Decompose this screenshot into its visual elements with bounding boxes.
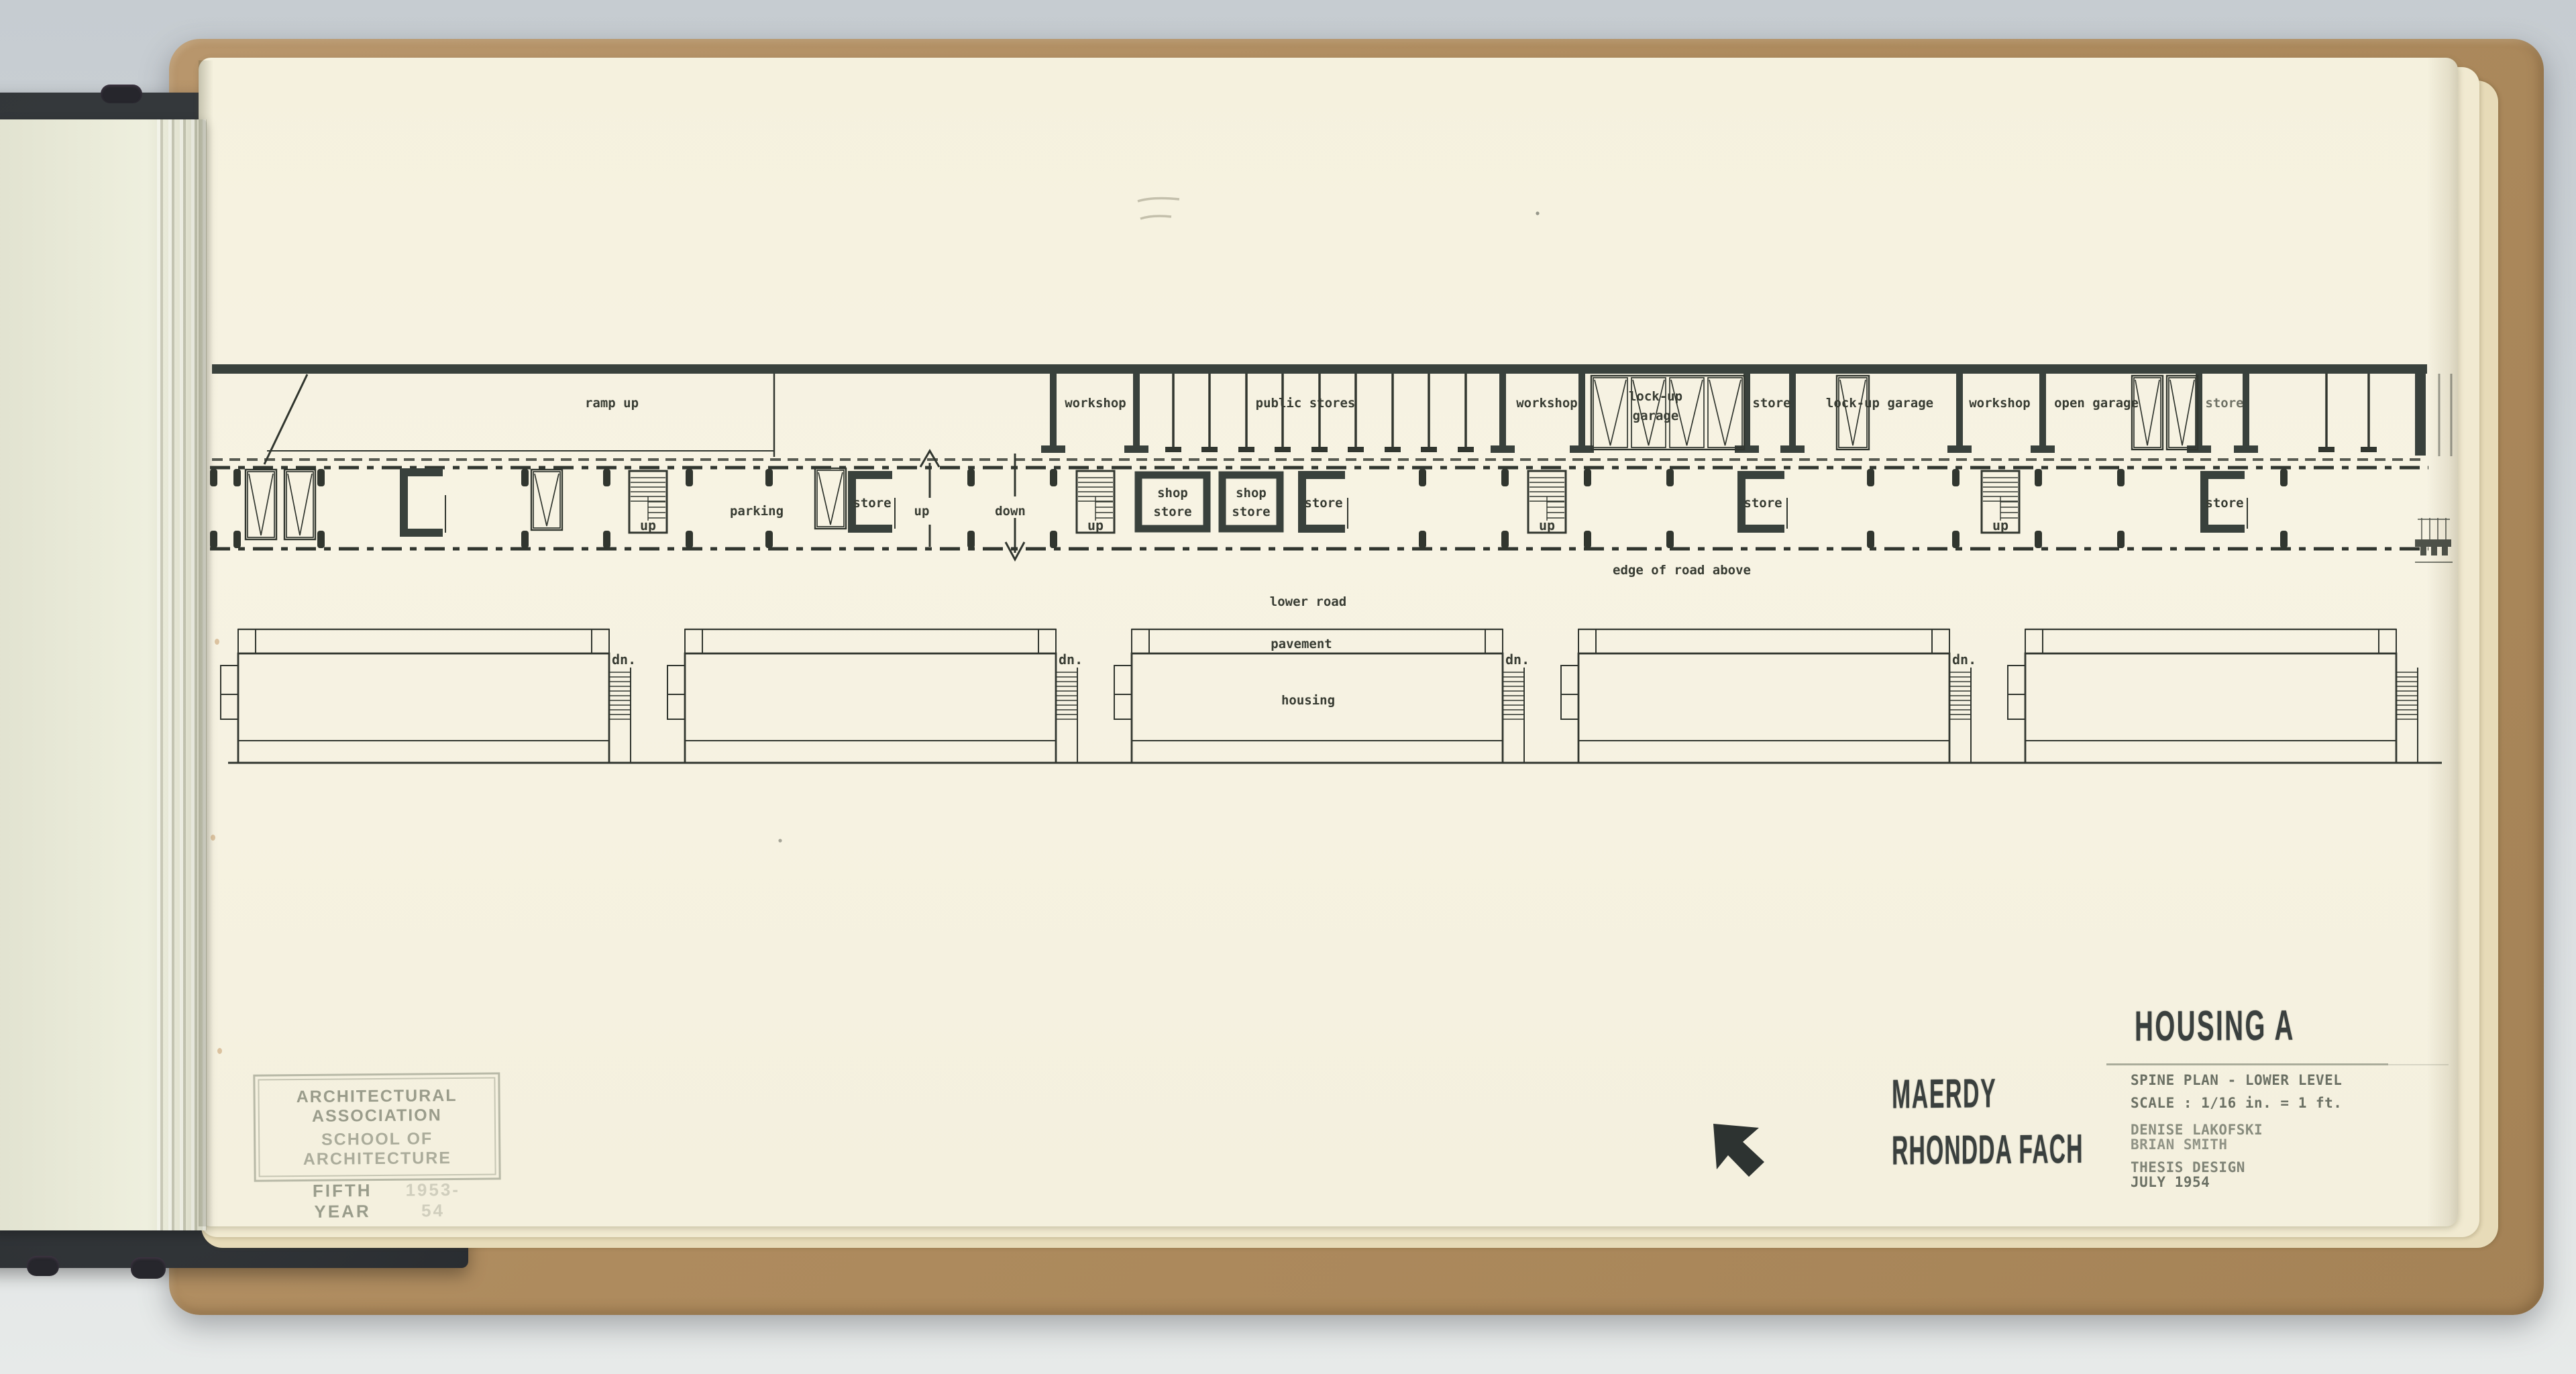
author-name: DENISE LAKOFSKI	[2131, 1122, 2263, 1138]
turned-pages-stack	[0, 119, 207, 1230]
school-stamp-line1: ARCHITECTURAL ASSOCIATION	[255, 1086, 498, 1126]
foxing-speck	[217, 1048, 222, 1054]
binding-knob	[101, 85, 142, 103]
drawing-scale: SCALE : 1/16 in. = 1 ft.	[2131, 1095, 2342, 1111]
gutter-shadow	[199, 60, 213, 1226]
school-stamp-session: 1953-54	[398, 1179, 469, 1222]
project-title-stamp: HOUSING A	[2135, 1002, 2295, 1051]
school-stamp-line2: SCHOOL OF ARCHITECTURE	[256, 1128, 498, 1169]
photo-of-bound-architectural-drawing: { "plan_labels": { "ramp_up": "ramp up",…	[0, 0, 2576, 1374]
drawing-title: SPINE PLAN - LOWER LEVEL	[2131, 1072, 2342, 1088]
location-stamp-line1: MAERDY	[1892, 1070, 1996, 1118]
drawing-sheet	[199, 58, 2458, 1226]
title-block-divider	[2106, 1063, 2388, 1065]
foxing-speck	[211, 835, 215, 841]
title-block-divider-faint	[2388, 1064, 2449, 1065]
foxing-speck	[215, 639, 219, 645]
location-stamp-line2: RHONDDA FACH	[1892, 1125, 2084, 1174]
submission-type: THESIS DESIGN	[2131, 1159, 2245, 1175]
binding-knob	[131, 1257, 166, 1279]
author-name: BRIAN SMITH	[2131, 1137, 2228, 1153]
school-stamp-year-label: FIFTH YEAR	[287, 1180, 398, 1222]
submission-date: JULY 1954	[2131, 1174, 2210, 1190]
school-stamp: ARCHITECTURAL ASSOCIATION SCHOOL OF ARCH…	[253, 1072, 500, 1181]
binding-knob	[27, 1256, 59, 1276]
